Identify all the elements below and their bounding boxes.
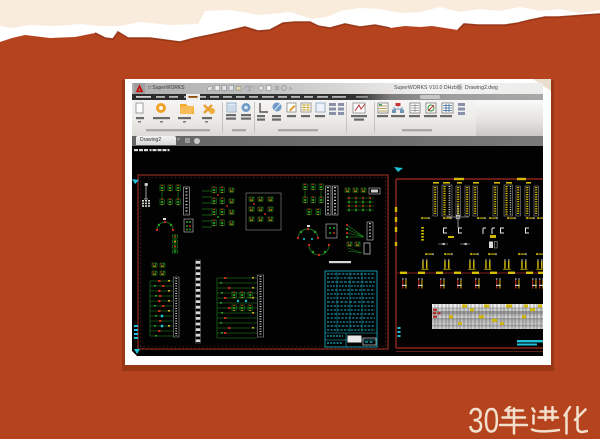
svg-text:30: 30 (468, 406, 499, 435)
